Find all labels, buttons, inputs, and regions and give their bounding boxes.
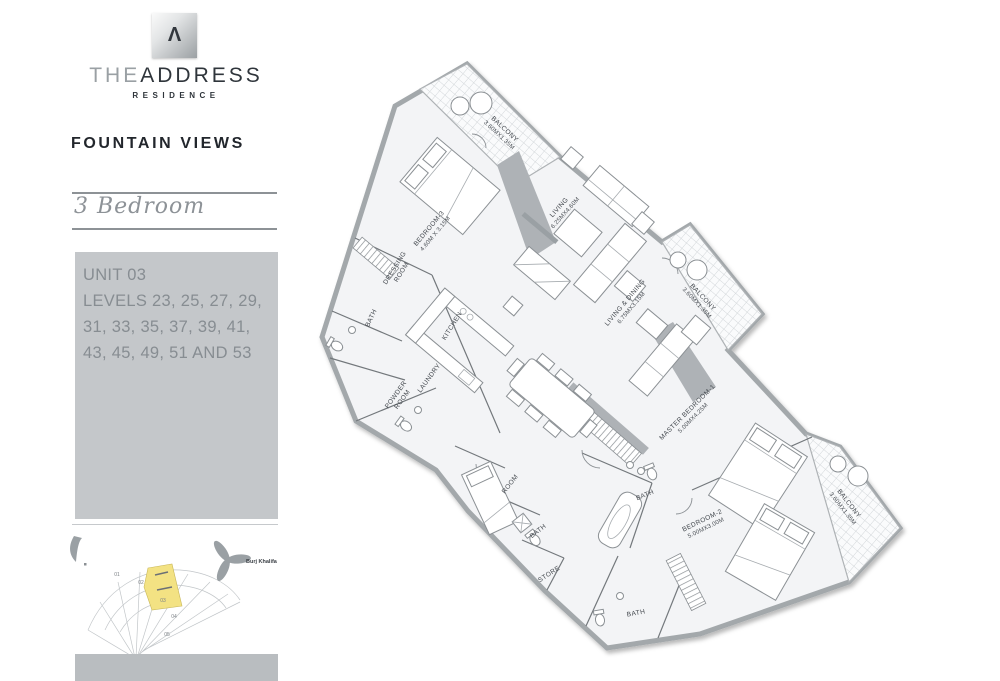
bottom-accent-bar bbox=[75, 654, 278, 681]
brand-name-address: ADDRESS bbox=[140, 64, 263, 87]
north-arrow-dot bbox=[84, 563, 87, 566]
brand-logo-symbol: Λ bbox=[168, 24, 181, 47]
unit-number: UNIT 03 bbox=[83, 262, 278, 288]
keyplan-unit-03: 03 bbox=[160, 598, 166, 604]
burj-khalifa-label: Burj Khalifa bbox=[246, 559, 278, 565]
project-title: FOUNTAIN VIEWS bbox=[71, 135, 245, 153]
keyplan-divider bbox=[72, 524, 278, 525]
divider-bottom bbox=[72, 228, 277, 230]
brand-residence: RESIDENCE bbox=[36, 91, 316, 100]
brand-logo: Λ bbox=[152, 13, 197, 58]
keyplan-unit-02: 02 bbox=[138, 580, 144, 586]
exterior-walls bbox=[322, 64, 900, 648]
sink-master-2 bbox=[638, 468, 645, 475]
unit-type-script: 3 Bedroom bbox=[74, 194, 205, 219]
sink-master-1 bbox=[627, 462, 634, 469]
brochure-page: Λ THEADDRESS RESIDENCE FOUNTAIN VIEWS 3 … bbox=[0, 0, 1000, 681]
north-arrow-icon bbox=[70, 536, 82, 562]
sink-bath2 bbox=[617, 593, 624, 600]
floor-plan: BALCONY 3.60MX1.35M BEDROOM-3 4.60M X 3.… bbox=[300, 28, 920, 678]
unit-info-box: UNIT 03 LEVELS 23, 25, 27, 29, 31, 33, 3… bbox=[75, 252, 278, 519]
key-plan: 01 02 03 04 05 Burj Khalifa bbox=[60, 530, 290, 655]
keyplan-unit-04: 04 bbox=[171, 614, 177, 620]
keyplan-unit-01: 01 bbox=[114, 572, 120, 578]
sink-powder bbox=[415, 407, 422, 414]
levels-line-1: LEVELS 23, 25, 27, 29, bbox=[83, 288, 278, 314]
sink-bath3 bbox=[349, 327, 356, 334]
keyplan-unit-05: 05 bbox=[164, 632, 170, 638]
brand-name-the: THE bbox=[89, 64, 140, 87]
brand-name: THEADDRESS bbox=[36, 64, 316, 88]
apartment-shell bbox=[322, 64, 900, 648]
levels-line-3: 43, 45, 49, 51 AND 53 bbox=[83, 340, 278, 366]
levels-line-2: 31, 33, 35, 37, 39, 41, bbox=[83, 314, 278, 340]
